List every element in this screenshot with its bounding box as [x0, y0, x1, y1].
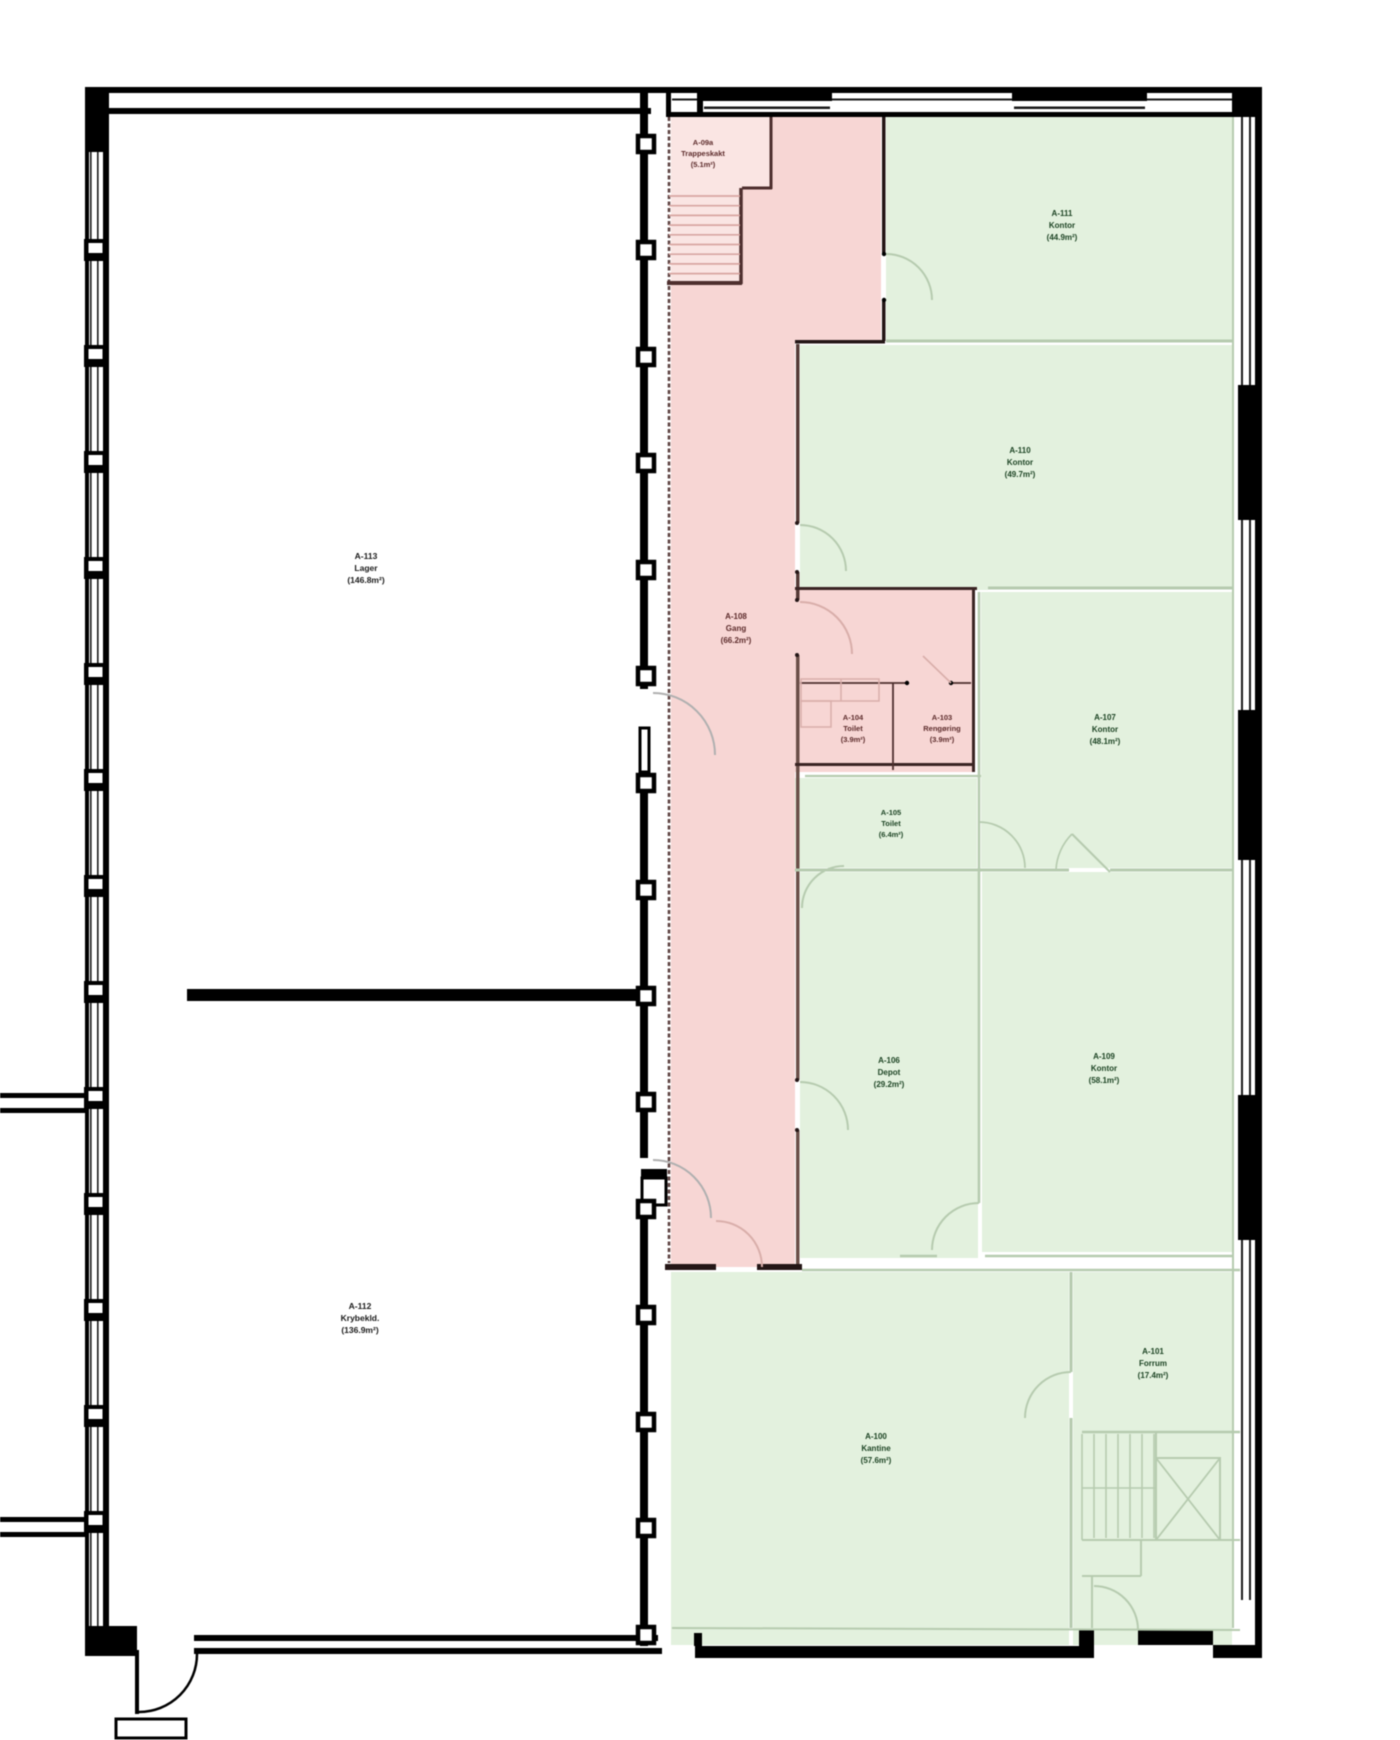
svg-text:A-104Toilet(3.9m²): A-104Toilet(3.9m²): [841, 713, 866, 744]
svg-text:A-105Toilet(6.4m²): A-105Toilet(6.4m²): [879, 808, 904, 839]
